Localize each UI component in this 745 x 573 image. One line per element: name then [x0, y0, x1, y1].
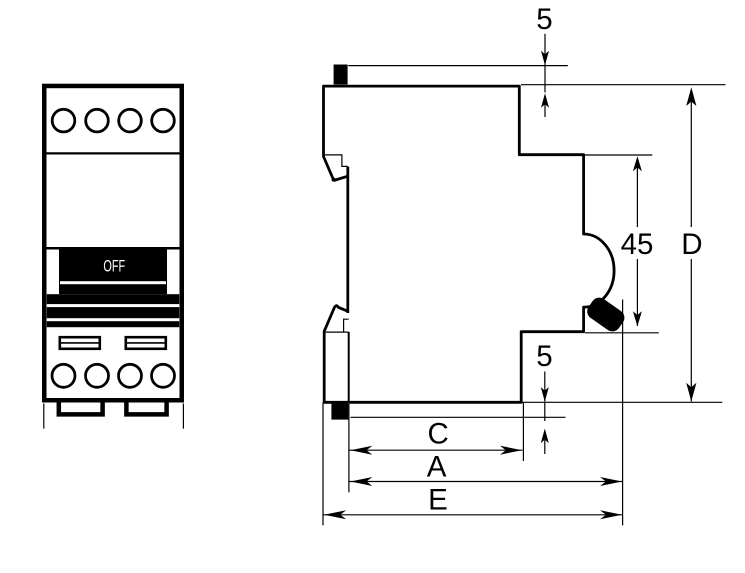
svg-text:5: 5 — [536, 340, 552, 373]
svg-text:E: E — [428, 484, 448, 517]
svg-text:C: C — [428, 417, 449, 450]
svg-text:45: 45 — [621, 228, 654, 261]
svg-text:A: A — [427, 451, 447, 484]
svg-text:OFF: OFF — [103, 256, 125, 275]
svg-text:D: D — [681, 228, 702, 261]
svg-text:5: 5 — [536, 3, 552, 36]
